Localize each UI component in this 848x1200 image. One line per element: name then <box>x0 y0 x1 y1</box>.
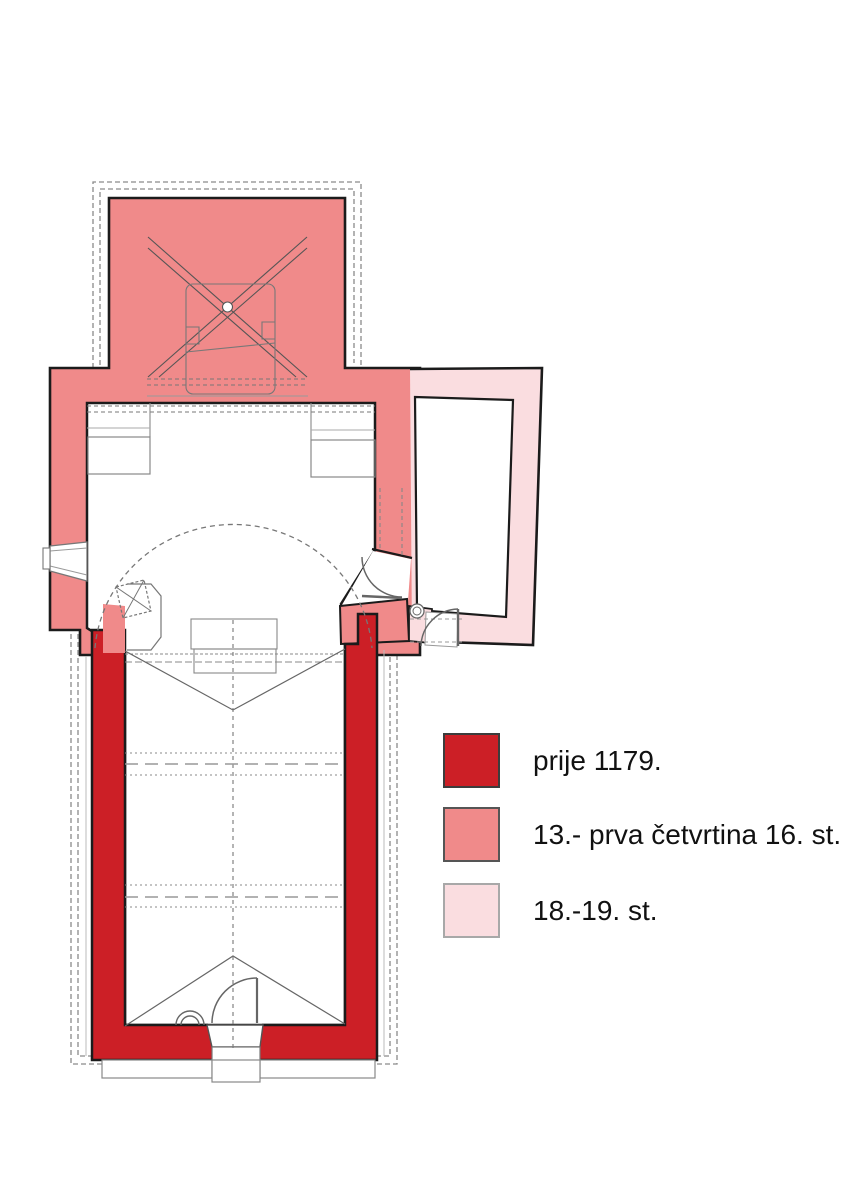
step-left <box>102 1060 212 1078</box>
church-floor-plan <box>0 0 848 1200</box>
page: prije 1179. 13.- prva četvrtina 16. st. … <box>0 0 848 1200</box>
legend-swatch-18-19 <box>443 883 500 938</box>
legend-swatch-13-16 <box>443 807 500 862</box>
corner-niche-inner <box>413 607 421 615</box>
step-middle <box>212 1060 260 1082</box>
legend-swatch-before-1179 <box>443 733 500 788</box>
chapel-interior <box>415 397 513 617</box>
legend-label-18-19: 18.-19. st. <box>533 895 658 927</box>
vault-boss <box>223 302 233 312</box>
entry-steps <box>102 1060 375 1082</box>
step-right <box>260 1060 375 1078</box>
legend: prije 1179. 13.- prva četvrtina 16. st. … <box>443 733 841 957</box>
legend-label-13-16: 13.- prva četvrtina 16. st. <box>533 819 841 851</box>
legend-row-13-16: 13.- prva četvrtina 16. st. <box>443 807 841 862</box>
window-outer-sill <box>43 548 50 569</box>
legend-row-before-1179: prije 1179. <box>443 733 841 788</box>
legend-label-before-1179: prije 1179. <box>533 745 662 777</box>
legend-row-18-19: 18.-19. st. <box>443 883 841 938</box>
sanctuary-and-nave-interior <box>87 403 375 1047</box>
portal-splay <box>207 1025 263 1047</box>
